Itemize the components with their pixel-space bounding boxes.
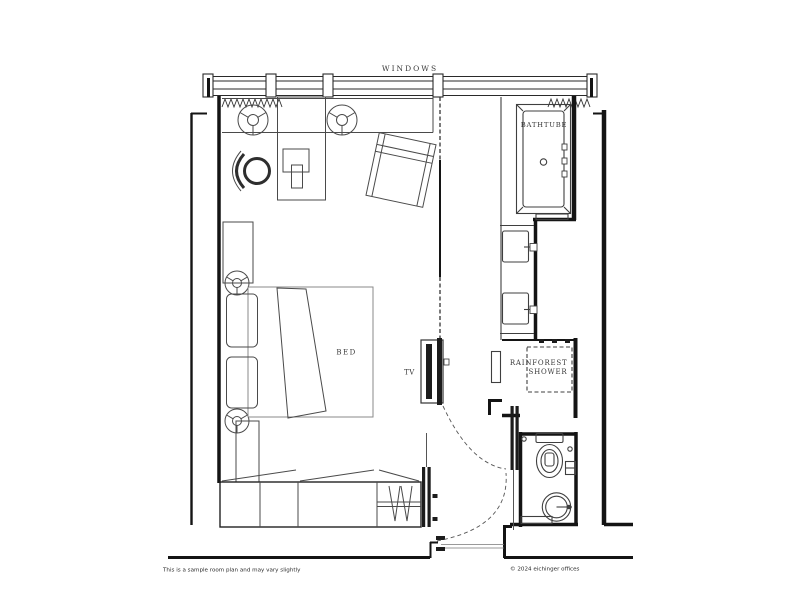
wardrobe: [220, 470, 421, 527]
desk-lamp: [283, 149, 309, 172]
door-stop: [436, 547, 445, 551]
shower-label-line2: SHOWER: [528, 368, 567, 376]
armchair: [366, 133, 436, 208]
window-mullion: [266, 74, 276, 97]
disclaimer-text: This is a sample room plan and may vary …: [162, 568, 301, 574]
sink: [503, 293, 529, 324]
toilet-paper-holder: [566, 462, 576, 475]
pillow: [227, 294, 258, 347]
bottom-wall-and-entrance: [168, 527, 633, 558]
interior-walls: [219, 96, 578, 527]
window-mullion: [323, 74, 333, 97]
shower-label-line1: RAINFOREST: [510, 359, 568, 367]
tv-label: TV: [404, 369, 415, 377]
door-swing-arc: [443, 406, 506, 469]
ceiling-light: [327, 105, 357, 135]
window-band: [203, 74, 597, 97]
entrance-door-frame: [422, 433, 438, 527]
bed-duvet: [277, 288, 326, 418]
faucet: [530, 244, 537, 252]
bathroom-sliding-door: [511, 406, 519, 530]
door-hinge: [433, 517, 438, 521]
door-stop: [436, 536, 445, 540]
copyright-text: © 2024 eichinger offices: [510, 566, 580, 573]
tv-screen: [426, 344, 432, 399]
bed-label: BED: [336, 349, 356, 357]
hanger-symbols: [389, 486, 412, 521]
door-hinge: [433, 494, 438, 498]
faucet: [530, 306, 537, 314]
ceiling-light: [238, 105, 268, 135]
bathtub-label: BATHTUBE: [521, 121, 568, 129]
floor-plan-drawing: BED TV BATHTUBE: [0, 0, 800, 600]
desk-lamp: [292, 165, 303, 188]
pillow: [227, 357, 258, 408]
nightstand: [223, 222, 253, 283]
floor-plan-page: BED TV BATHTUBE: [0, 0, 800, 600]
desk-chair: [233, 151, 270, 191]
window-mullion: [433, 74, 443, 97]
windows-label: WINDOWS: [382, 64, 438, 73]
tv-unit: [421, 338, 449, 405]
bathtub-drain: [540, 159, 546, 165]
nightstand: [236, 421, 259, 482]
toilet: [536, 434, 563, 478]
wall-hatching-left: [222, 99, 282, 107]
door-swing-arc: [437, 473, 506, 541]
vanity-sinks: [500, 226, 537, 334]
wc-room: [521, 434, 576, 524]
desk: [278, 97, 326, 200]
shower-niche: [492, 352, 501, 383]
